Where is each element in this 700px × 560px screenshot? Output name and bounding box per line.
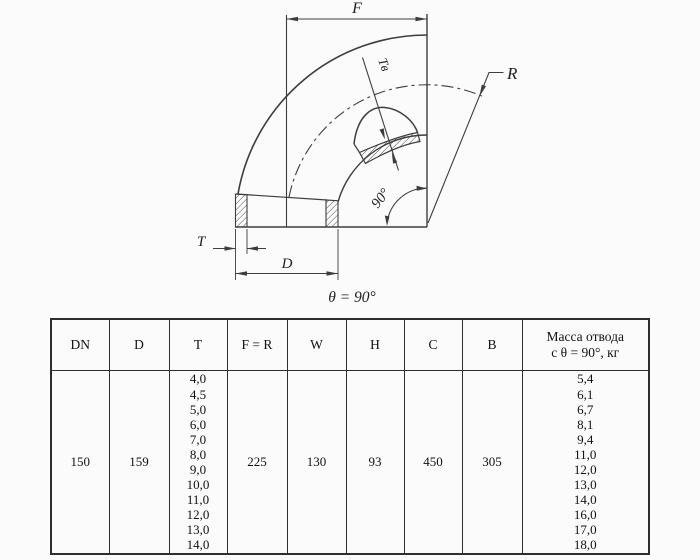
cell-w: 130 [287, 371, 346, 555]
dimension-tv-arrow-lower [392, 153, 398, 164]
dimension-t-arrow-left [225, 246, 236, 250]
cell-d: 159 [109, 371, 169, 555]
header-fr: F = R [227, 319, 287, 371]
cell-b: 305 [462, 371, 522, 555]
header-mass: Масса отвода с θ = 90°, кг [522, 319, 649, 371]
bottom-right-wall-section [326, 200, 338, 227]
bottom-end-rim-line [236, 194, 327, 200]
dimension-f-arrow-right [416, 17, 428, 21]
radius-r-arrow [479, 85, 486, 97]
cell-mass-values: 5,4 6,1 6,7 8,1 9,4 11,0 12,0 13,0 14,0 … [522, 371, 649, 555]
cell-h: 93 [346, 371, 404, 555]
header-h: H [346, 319, 404, 371]
bottom-left-wall-section [236, 194, 248, 227]
header-b: B [462, 319, 522, 371]
table-header-row: DN D T F = R W H C B Масса отвода с θ = … [51, 319, 649, 371]
dimension-t-label: T [197, 234, 207, 250]
dimension-f-arrow-left [287, 17, 299, 21]
header-c: C [404, 319, 462, 371]
cell-c: 450 [404, 371, 462, 555]
dimension-d-arrow-left [236, 271, 248, 275]
header-w: W [287, 319, 346, 371]
header-dn: DN [51, 319, 109, 371]
dimension-d-arrow-right [327, 271, 339, 275]
radius-r-label: R [506, 64, 518, 83]
elbow-technical-drawing: F T D 90° R Tв θ = 90° [0, 0, 700, 332]
dimensions-table: DN D T F = R W H C B Масса отвода с θ = … [50, 318, 650, 555]
drawing-caption-theta: θ = 90° [328, 289, 376, 306]
dimension-tv-label: Tв [375, 56, 394, 74]
angle-arrow-bottom [385, 216, 390, 227]
cell-t-values: 4,0 4,5 5,0 6,0 7,0 8,0 9,0 10,0 11,0 12… [169, 371, 227, 555]
angle-label: 90° [368, 185, 393, 211]
dimension-t-arrow-right [247, 246, 258, 250]
cell-dn: 150 [51, 371, 109, 555]
angle-arrow-top [417, 186, 428, 191]
dimension-d-label: D [281, 256, 293, 272]
header-d: D [109, 319, 169, 371]
dimension-f-label: F [351, 0, 362, 17]
cell-fr: 225 [227, 371, 287, 555]
radius-r-leader [428, 73, 504, 224]
header-t: T [169, 319, 227, 371]
table-data-row: 150 159 4,0 4,5 5,0 6,0 7,0 8,0 9,0 10,0… [51, 371, 649, 555]
angle-arc [387, 188, 427, 224]
elbow-spec-page: F T D 90° R Tв θ = 90° [0, 0, 700, 560]
dimension-t-ext-lines [236, 229, 339, 280]
